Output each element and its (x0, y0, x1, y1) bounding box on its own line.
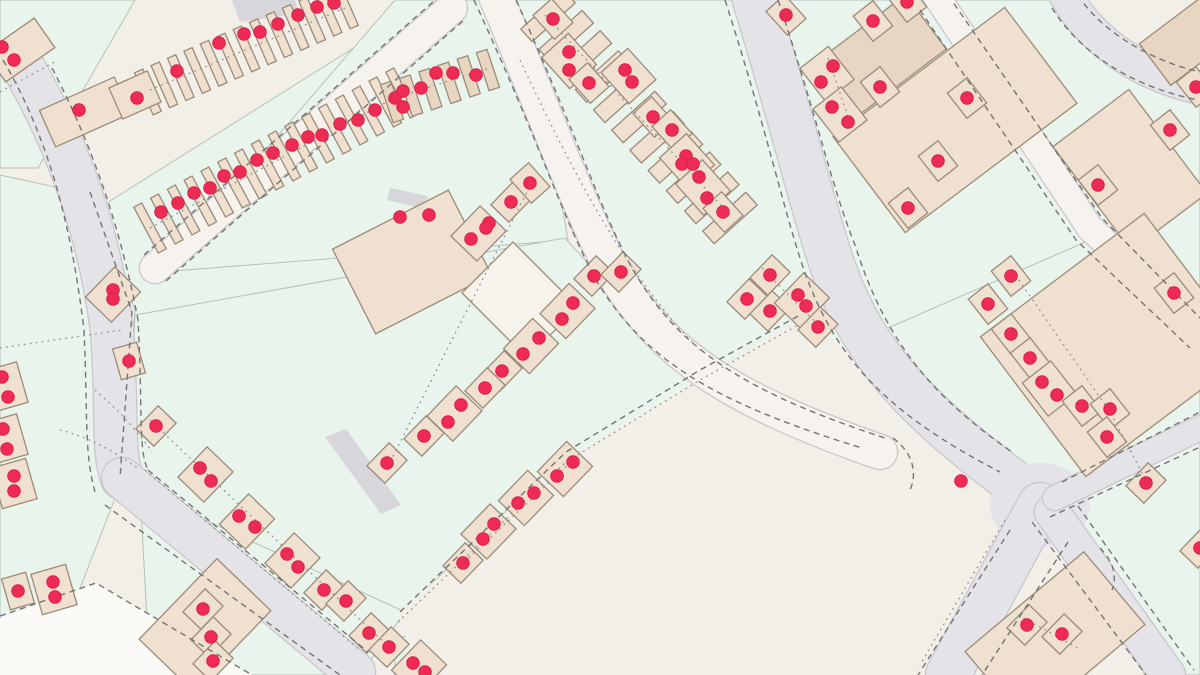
map-marker[interactable] (477, 533, 490, 546)
map-marker[interactable] (418, 430, 431, 443)
map-marker[interactable] (205, 631, 218, 644)
map-marker[interactable] (470, 69, 483, 82)
map-marker[interactable] (197, 603, 210, 616)
map-marker[interactable] (207, 655, 220, 668)
map-marker[interactable] (2, 391, 15, 404)
map-marker[interactable] (533, 332, 546, 345)
map-marker[interactable] (107, 293, 120, 306)
map-marker[interactable] (249, 521, 262, 534)
map-marker[interactable] (251, 154, 264, 167)
map-marker[interactable] (352, 114, 365, 127)
map-marker[interactable] (932, 155, 945, 168)
map-marker[interactable] (615, 266, 628, 279)
map-marker[interactable] (213, 37, 226, 50)
map-marker[interactable] (172, 197, 185, 210)
map-marker[interactable] (480, 222, 493, 235)
map-marker[interactable] (340, 595, 353, 608)
map-marker[interactable] (150, 420, 163, 433)
map-marker[interactable] (407, 657, 420, 670)
map-marker[interactable] (815, 76, 828, 89)
map-marker[interactable] (512, 497, 525, 510)
map-marker[interactable] (205, 475, 218, 488)
map-marker[interactable] (588, 270, 601, 283)
map-marker[interactable] (496, 365, 509, 378)
map-marker[interactable] (233, 510, 246, 523)
map-marker[interactable] (901, 0, 914, 8)
map-marker[interactable] (1021, 619, 1034, 632)
map-marker[interactable] (155, 206, 168, 219)
map-marker[interactable] (442, 416, 455, 429)
map-marker[interactable] (1051, 389, 1064, 402)
map-marker[interactable] (254, 26, 267, 39)
map-marker[interactable] (619, 64, 632, 77)
map-marker[interactable] (0, 41, 8, 54)
map-marker[interactable] (1, 443, 14, 456)
map-marker[interactable] (1005, 270, 1018, 283)
map-marker[interactable] (647, 111, 660, 124)
map-marker[interactable] (286, 139, 299, 152)
map-marker[interactable] (383, 641, 396, 654)
map-marker[interactable] (1092, 179, 1105, 192)
map-marker[interactable] (455, 399, 468, 412)
map-marker[interactable] (397, 85, 410, 98)
map-marker[interactable] (238, 28, 251, 41)
map-marker[interactable] (693, 171, 706, 184)
map-marker[interactable] (318, 584, 331, 597)
map-marker[interactable] (567, 297, 580, 310)
map-marker[interactable] (1005, 328, 1018, 341)
map-marker[interactable] (12, 585, 25, 598)
map-marker[interactable] (955, 475, 968, 488)
map-marker[interactable] (1076, 400, 1089, 413)
map-marker[interactable] (567, 456, 580, 469)
map-marker[interactable] (188, 187, 201, 200)
map-marker[interactable] (717, 206, 730, 219)
map-marker[interactable] (234, 166, 247, 179)
map-marker[interactable] (369, 104, 382, 117)
map-marker[interactable] (505, 196, 518, 209)
map-marker[interactable] (311, 1, 324, 14)
map-marker[interactable] (1190, 81, 1200, 94)
map-marker[interactable] (363, 627, 376, 640)
map-marker[interactable] (447, 67, 460, 80)
map-marker[interactable] (0, 371, 8, 384)
map-viewport[interactable] (0, 0, 1200, 675)
map-marker[interactable] (488, 518, 501, 531)
map-marker[interactable] (423, 209, 436, 222)
map-marker[interactable] (780, 9, 793, 22)
map-marker[interactable] (394, 211, 407, 224)
map-marker[interactable] (1101, 431, 1114, 444)
map-marker[interactable] (479, 382, 492, 395)
map-marker[interactable] (0, 423, 9, 436)
map-marker[interactable] (826, 101, 839, 114)
map-marker[interactable] (800, 300, 813, 313)
map-marker[interactable] (8, 485, 21, 498)
map-marker[interactable] (171, 65, 184, 78)
map-marker[interactable] (1036, 376, 1049, 389)
map-marker[interactable] (1056, 628, 1069, 641)
map-marker[interactable] (123, 355, 136, 368)
map-marker[interactable] (267, 147, 280, 160)
map-marker[interactable] (1104, 403, 1117, 416)
map-marker[interactable] (902, 202, 915, 215)
map-marker[interactable] (563, 64, 576, 77)
map-marker[interactable] (430, 67, 443, 80)
map-marker[interactable] (666, 124, 679, 137)
map-marker[interactable] (204, 182, 217, 195)
map-canvas[interactable] (0, 0, 1200, 675)
map-marker[interactable] (381, 457, 394, 470)
map-marker[interactable] (397, 101, 410, 114)
map-marker[interactable] (194, 462, 207, 475)
map-marker[interactable] (701, 192, 714, 205)
map-marker[interactable] (1168, 287, 1181, 300)
map-marker[interactable] (556, 313, 569, 326)
map-marker[interactable] (218, 170, 231, 183)
map-marker[interactable] (415, 82, 428, 95)
map-marker[interactable] (8, 54, 21, 67)
map-marker[interactable] (827, 60, 840, 73)
map-marker[interactable] (334, 118, 347, 131)
map-marker[interactable] (8, 470, 21, 483)
map-marker[interactable] (961, 92, 974, 105)
map-marker[interactable] (867, 15, 880, 28)
map-marker[interactable] (131, 92, 144, 105)
map-marker[interactable] (1164, 124, 1177, 137)
map-marker[interactable] (292, 9, 305, 22)
map-marker[interactable] (524, 177, 537, 190)
map-marker[interactable] (281, 548, 294, 561)
map-marker[interactable] (982, 298, 995, 311)
map-marker[interactable] (47, 576, 60, 589)
map-marker[interactable] (316, 129, 329, 142)
map-marker[interactable] (551, 470, 564, 483)
map-marker[interactable] (764, 269, 777, 282)
map-marker[interactable] (1140, 477, 1153, 490)
map-marker[interactable] (517, 348, 530, 361)
map-marker[interactable] (292, 561, 305, 574)
map-marker[interactable] (457, 557, 470, 570)
map-marker[interactable] (583, 77, 596, 90)
map-marker[interactable] (1024, 352, 1037, 365)
map-marker[interactable] (687, 158, 700, 171)
map-marker[interactable] (73, 104, 86, 117)
map-marker[interactable] (302, 131, 315, 144)
map-marker[interactable] (874, 81, 887, 94)
map-marker[interactable] (842, 116, 855, 129)
map-marker[interactable] (792, 289, 805, 302)
map-marker[interactable] (328, 0, 341, 9)
map-marker[interactable] (563, 46, 576, 59)
map-marker[interactable] (741, 293, 754, 306)
map-marker[interactable] (272, 18, 285, 31)
map-marker[interactable] (547, 13, 560, 26)
map-marker[interactable] (812, 321, 825, 334)
map-marker[interactable] (528, 487, 541, 500)
map-marker[interactable] (465, 233, 478, 246)
map-marker[interactable] (764, 305, 777, 318)
map-marker[interactable] (49, 591, 62, 604)
map-marker[interactable] (419, 666, 432, 675)
map-marker[interactable] (626, 76, 639, 89)
